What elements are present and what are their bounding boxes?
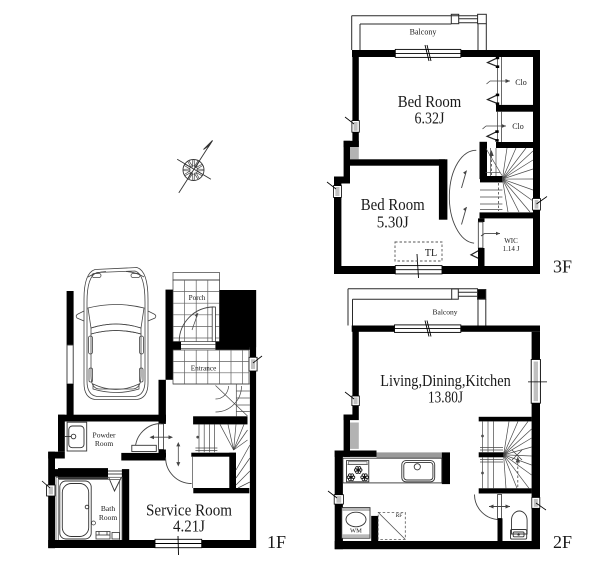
svg-text:5.30J: 5.30J <box>377 213 409 232</box>
svg-text:WIC: WIC <box>504 237 518 245</box>
svg-text:2F: 2F <box>553 532 572 552</box>
svg-text:Clo: Clo <box>512 122 524 131</box>
svg-text:3F: 3F <box>553 257 572 277</box>
svg-text:6.32J: 6.32J <box>415 109 445 128</box>
svg-text:Porch: Porch <box>189 294 206 302</box>
svg-text:13.80J: 13.80J <box>428 388 463 407</box>
svg-text:Room: Room <box>95 439 114 448</box>
svg-text:RF: RF <box>396 513 403 519</box>
svg-text:WM: WM <box>350 528 362 535</box>
svg-text:Entrance: Entrance <box>191 365 217 373</box>
svg-text:TL: TL <box>425 248 437 259</box>
svg-text:Bath: Bath <box>101 504 115 513</box>
svg-text:4.21J: 4.21J <box>173 517 205 536</box>
svg-text:Bed Room: Bed Room <box>361 195 425 214</box>
svg-text:Clo: Clo <box>515 78 527 87</box>
svg-text:1F: 1F <box>267 532 286 552</box>
svg-text:Balcony: Balcony <box>433 308 458 317</box>
svg-text:1.14 J: 1.14 J <box>503 245 520 253</box>
svg-text:Room: Room <box>99 513 118 522</box>
svg-text:Balcony: Balcony <box>410 28 437 37</box>
